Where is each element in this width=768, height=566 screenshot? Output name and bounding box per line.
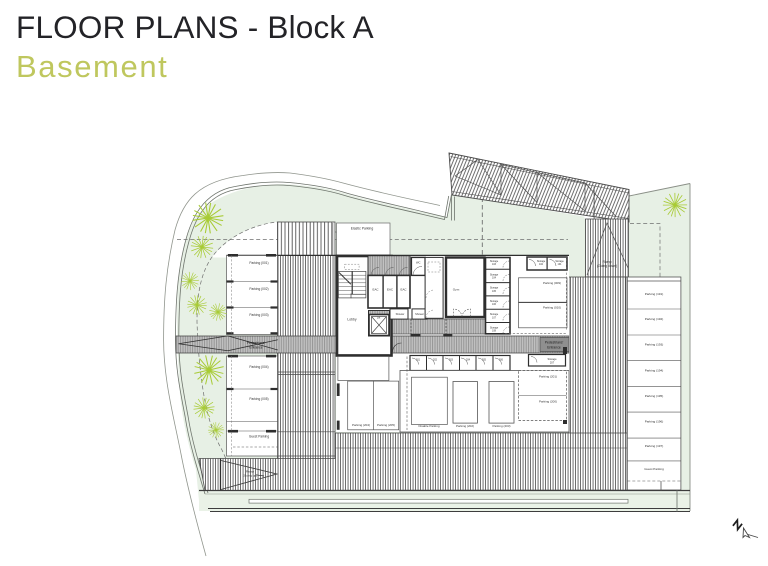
svg-text:Parking (193): Parking (193) [645,343,664,347]
svg-text:Parking (197): Parking (197) [645,444,664,448]
svg-text:Parking (002): Parking (002) [249,287,268,291]
svg-text:Parking (201): Parking (201) [539,375,557,379]
svg-text:Parking (004): Parking (004) [249,365,268,369]
svg-text:Lift: Lift [377,317,381,320]
svg-text:Elastic Parking: Elastic Parking [351,227,374,231]
svg-text:Parking (191): Parking (191) [645,292,664,296]
svg-text:Parking (204): Parking (204) [352,423,370,427]
svg-text:203: 203 [449,359,454,362]
svg-text:Parking (192): Parking (192) [645,317,664,321]
svg-text:Shower: Shower [415,312,424,316]
svg-text:102: 102 [539,263,544,266]
svg-text:104: 104 [492,277,497,280]
svg-text:Pedestrians': Pedestrians' [247,341,265,345]
svg-text:Parking (001): Parking (001) [249,261,268,265]
svg-text:Gym: Gym [453,288,460,292]
svg-text:EAC: EAC [401,288,407,292]
svg-text:Parking (005): Parking (005) [249,397,268,401]
svg-text:Storage: Storage [547,357,557,361]
svg-text:Guest Parking: Guest Parking [249,435,269,439]
svg-text:Parking (009): Parking (009) [543,281,561,285]
svg-text:Entrance: Entrance [249,346,262,350]
svg-text:103: 103 [492,263,497,266]
svg-text:Parking (205): Parking (205) [377,423,395,427]
svg-text:105: 105 [492,290,497,293]
svg-text:206: 206 [499,359,504,362]
svg-text:(Going up): (Going up) [243,474,257,478]
svg-text:201: 201 [416,359,421,362]
svg-text:101: 101 [558,263,563,266]
svg-text:Parking (194): Parking (194) [645,369,664,373]
svg-text:Entrance: Entrance [547,346,561,350]
svg-text:Parking (003): Parking (003) [249,313,268,317]
svg-text:205: 205 [482,359,487,362]
svg-text:Disable Parking: Disable Parking [418,424,439,428]
svg-text:204: 204 [466,359,471,362]
svg-text:Parking (202): Parking (202) [456,424,474,428]
svg-text:Pedestrians': Pedestrians' [545,341,564,345]
svg-text:EAC: EAC [373,288,379,292]
svg-text:202: 202 [433,359,438,362]
svg-text:WC: WC [416,260,421,264]
svg-text:Shower: Shower [396,312,405,316]
svg-text:EAC: EAC [387,288,393,292]
svg-text:207: 207 [550,360,555,364]
svg-text:Lobby: Lobby [347,318,357,322]
svg-text:Guest Parking: Guest Parking [644,467,664,471]
svg-text:(Going down): (Going down) [597,264,617,268]
svg-text:107: 107 [492,316,497,319]
svg-text:106: 106 [492,303,497,306]
svg-text:Parking (203): Parking (203) [492,424,510,428]
svg-text:Parking (196): Parking (196) [645,420,664,424]
svg-text:Parking (195): Parking (195) [645,394,664,398]
svg-text:Parking (010): Parking (010) [543,306,561,310]
svg-text:Parking (200): Parking (200) [539,400,557,404]
svg-text:108: 108 [492,330,497,333]
